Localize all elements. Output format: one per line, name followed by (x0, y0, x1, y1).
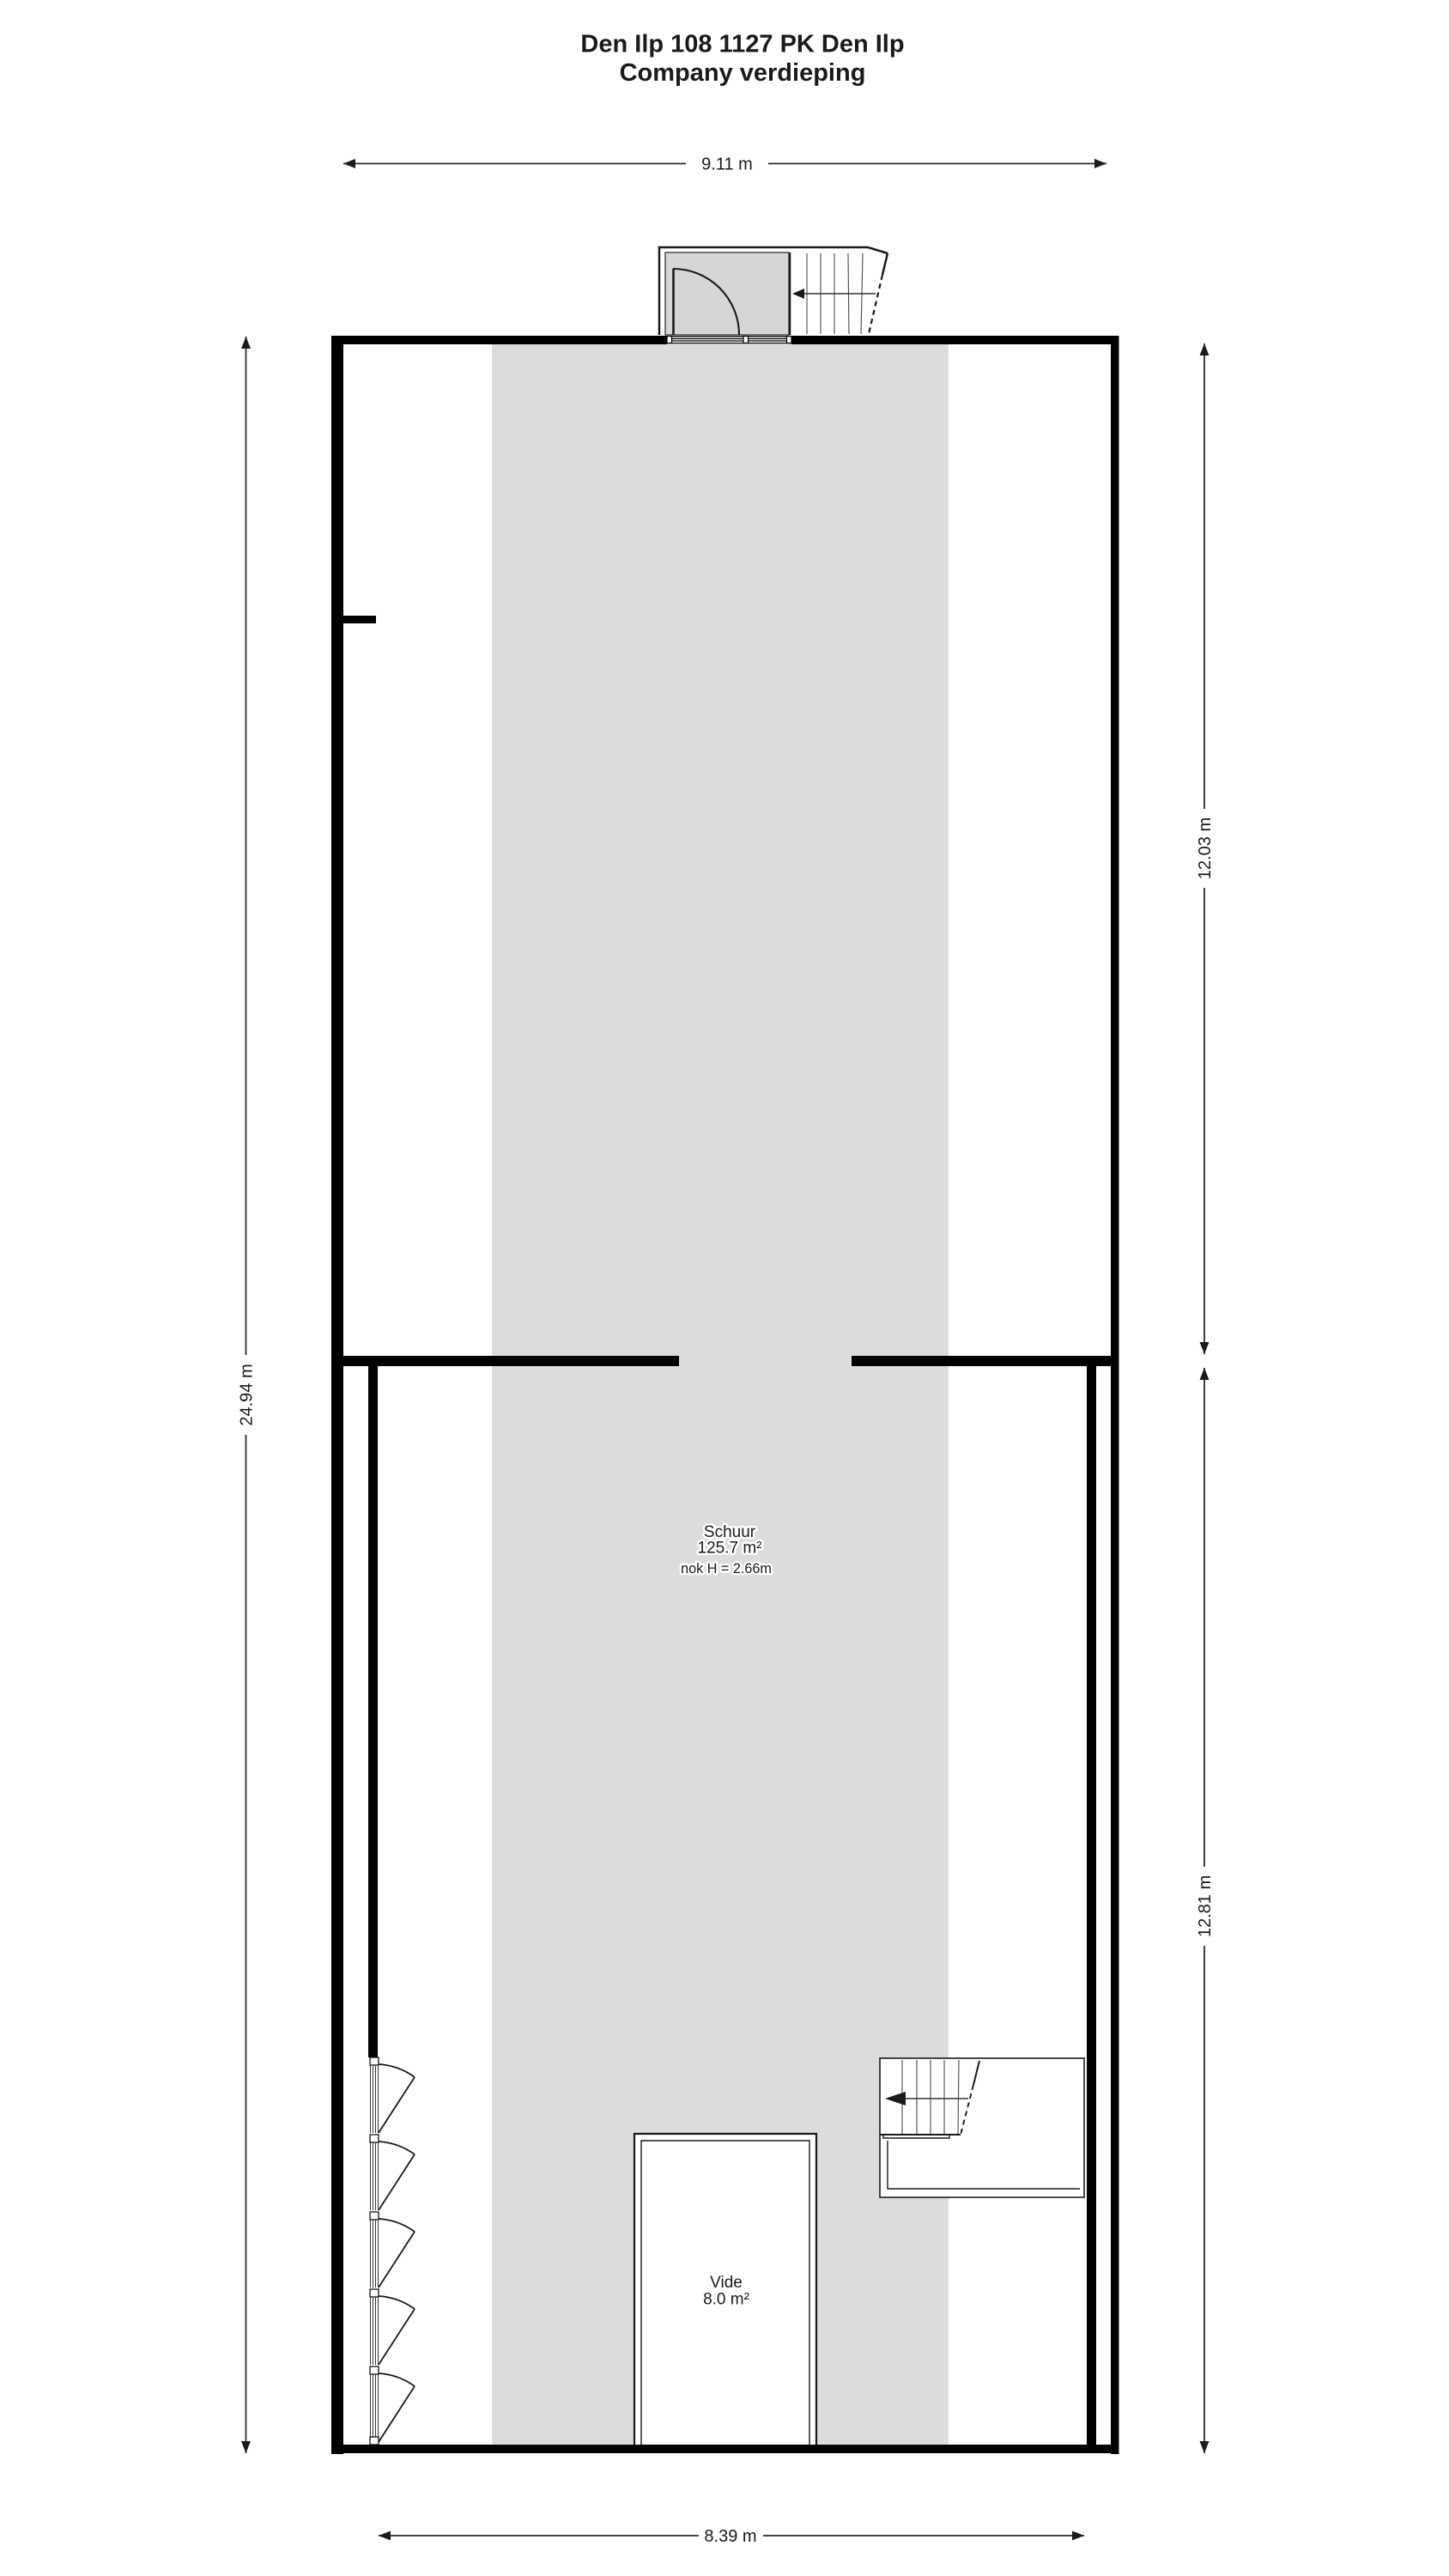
svg-text:24.94 m: 24.94 m (238, 1364, 257, 1425)
svg-text:nok H = 2.66m: nok H = 2.66m (681, 1561, 772, 1577)
svg-text:12.81 m: 12.81 m (1196, 1875, 1215, 1937)
svg-text:8.0 m²: 8.0 m² (703, 2291, 749, 2309)
svg-text:12.03 m: 12.03 m (1196, 817, 1215, 879)
svg-text:Company verdieping: Company verdieping (620, 59, 866, 87)
svg-text:8.39 m: 8.39 m (704, 2527, 756, 2546)
svg-text:9.11 m: 9.11 m (701, 155, 753, 174)
svg-text:Vide: Vide (710, 2274, 743, 2292)
svg-text:Den Ilp 108 1127 PK Den Ilp: Den Ilp 108 1127 PK Den Ilp (580, 31, 904, 58)
svg-text:125.7 m²: 125.7 m² (698, 1540, 762, 1558)
